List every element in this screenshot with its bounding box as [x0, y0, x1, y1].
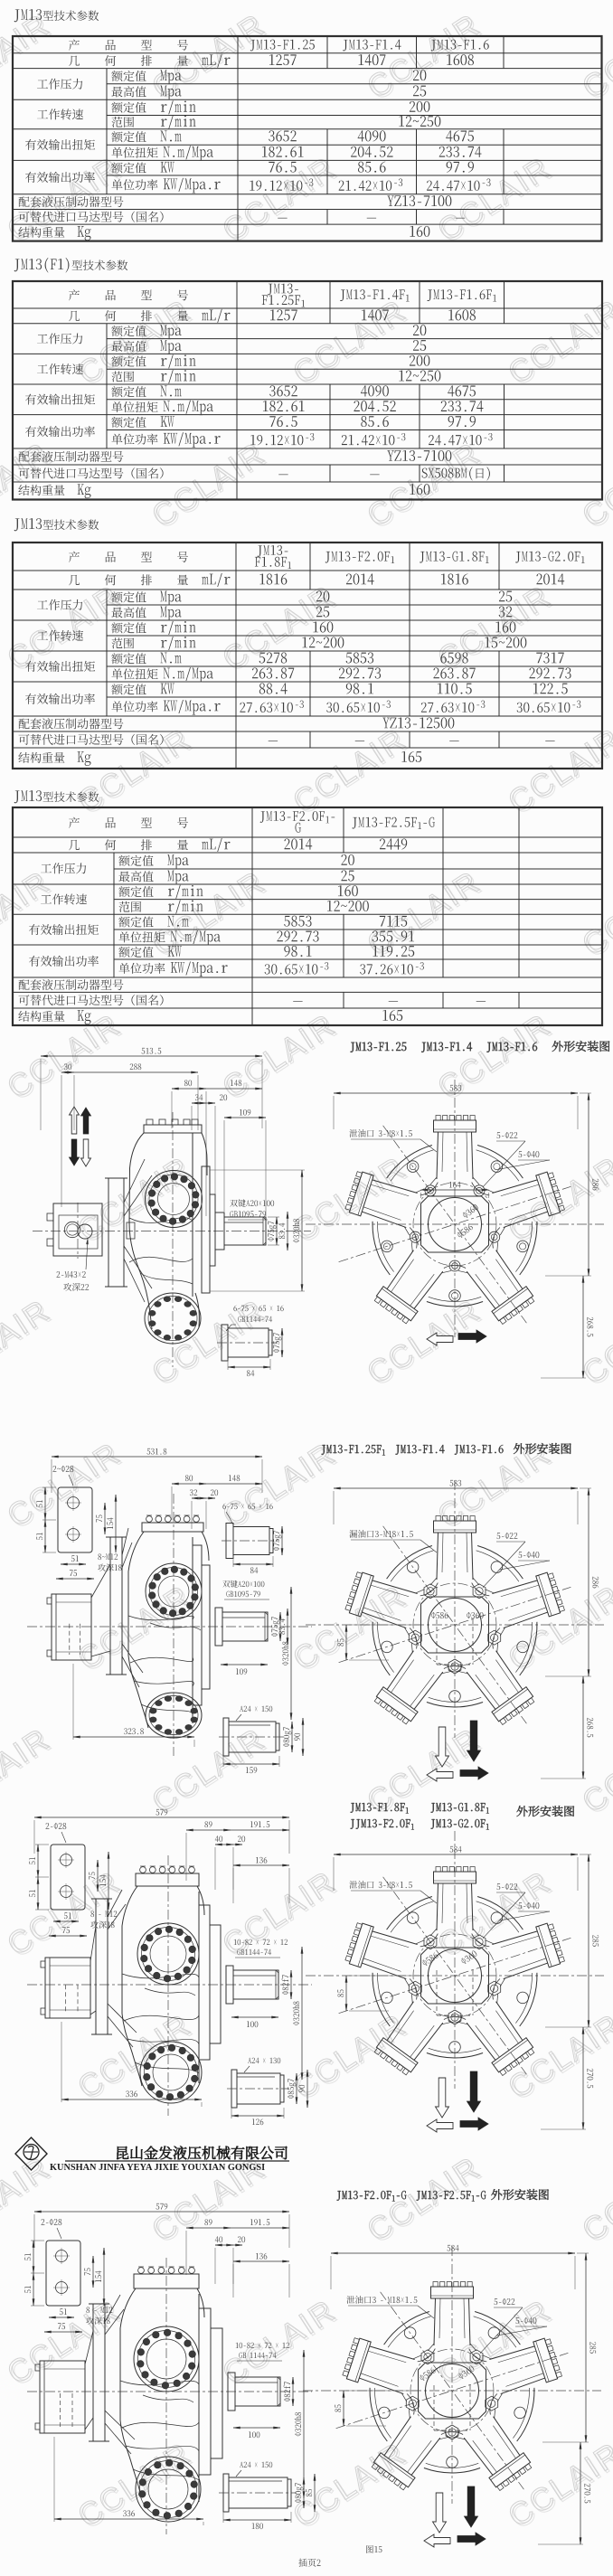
svg-text:CCLAIR: CCLAIR: [502, 2436, 613, 2534]
svg-text:CCLAIR: CCLAIR: [576, 436, 613, 534]
svg-text:CCLAIR: CCLAIR: [71, 722, 197, 820]
svg-text:CCLAIR: CCLAIR: [146, 1293, 271, 1392]
svg-text:CCLAIR: CCLAIR: [361, 436, 486, 534]
svg-text:CCLAIR: CCLAIR: [361, 7, 486, 106]
svg-text:CCLAIR: CCLAIR: [502, 722, 613, 820]
svg-text:CCLAIR: CCLAIR: [502, 1150, 613, 1249]
svg-text:CCLAIR: CCLAIR: [287, 2007, 412, 2106]
svg-text:CCLAIR: CCLAIR: [576, 864, 613, 963]
svg-text:CCLAIR: CCLAIR: [287, 1150, 412, 1249]
svg-text:CCLAIR: CCLAIR: [576, 1293, 613, 1392]
svg-text:CCLAIR: CCLAIR: [361, 1293, 486, 1392]
svg-text:CCLAIR: CCLAIR: [287, 293, 412, 392]
svg-text:CCLAIR: CCLAIR: [576, 7, 613, 106]
svg-text:CCLAIR: CCLAIR: [1, 2293, 127, 2392]
svg-text:CCLAIR: CCLAIR: [287, 1579, 412, 1677]
svg-text:CCLAIR: CCLAIR: [431, 1436, 557, 1534]
svg-text:CCLAIR: CCLAIR: [502, 2007, 613, 2106]
svg-text:CCLAIR: CCLAIR: [361, 864, 486, 963]
svg-text:CCLAIR: CCLAIR: [146, 436, 271, 534]
svg-text:CCLAIR: CCLAIR: [431, 150, 557, 249]
svg-text:CCLAIR: CCLAIR: [502, 293, 613, 392]
svg-text:CCLAIR: CCLAIR: [216, 1864, 342, 1963]
svg-text:CCLAIR: CCLAIR: [287, 722, 412, 820]
svg-text:CCLAIR: CCLAIR: [576, 2150, 613, 2249]
svg-text:CCLAIR: CCLAIR: [576, 1722, 613, 1820]
svg-text:CCLAIR: CCLAIR: [216, 579, 342, 677]
svg-text:CCLAIR: CCLAIR: [287, 2436, 412, 2534]
svg-text:CCLAIR: CCLAIR: [216, 150, 342, 249]
svg-text:CCLAIR: CCLAIR: [431, 1007, 557, 1106]
svg-text:CCLAIR: CCLAIR: [1, 579, 127, 677]
svg-text:CCLAIR: CCLAIR: [216, 1436, 342, 1534]
svg-text:KUNSHAN JINFA YEYA JIXIE YOUXI: KUNSHAN JINFA YEYA JIXIE YOUXIAN GONGSI: [50, 2163, 265, 2173]
